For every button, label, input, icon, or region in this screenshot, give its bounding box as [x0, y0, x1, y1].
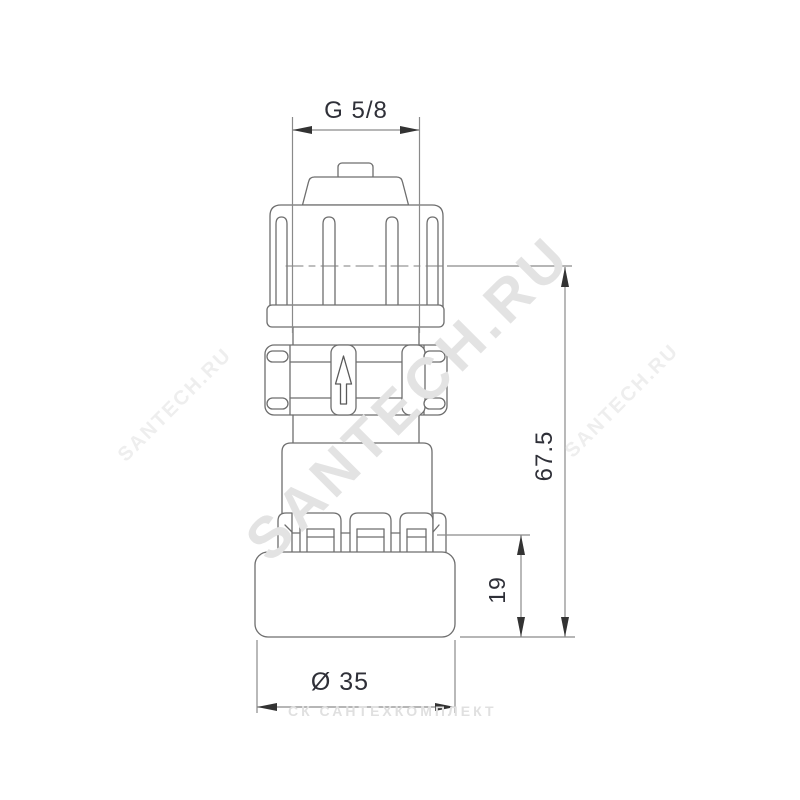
valve-neck-upper	[293, 327, 419, 346]
valve-cap-top	[303, 177, 409, 205]
valve-hex-body	[265, 345, 447, 415]
thread-dimension-label: G 5/8	[306, 97, 406, 125]
overall-height-dimension-label: 67.5	[531, 416, 559, 496]
valve-body	[282, 443, 432, 514]
valve-knurled-cap	[270, 205, 443, 307]
valve-neck-lower	[293, 415, 419, 444]
valve-flange	[267, 305, 444, 327]
valve-slotted-collar	[278, 513, 446, 552]
base-height-dimension-label: 19	[484, 560, 510, 620]
technical-drawing-canvas: G 5/8 67.5 19 Ø 35 SANTECH.RU SANTECH.RU…	[0, 0, 800, 800]
valve-outline	[255, 163, 455, 637]
base-diameter-dimension-label: Ø 35	[290, 668, 390, 697]
valve-base-cap	[255, 552, 455, 637]
